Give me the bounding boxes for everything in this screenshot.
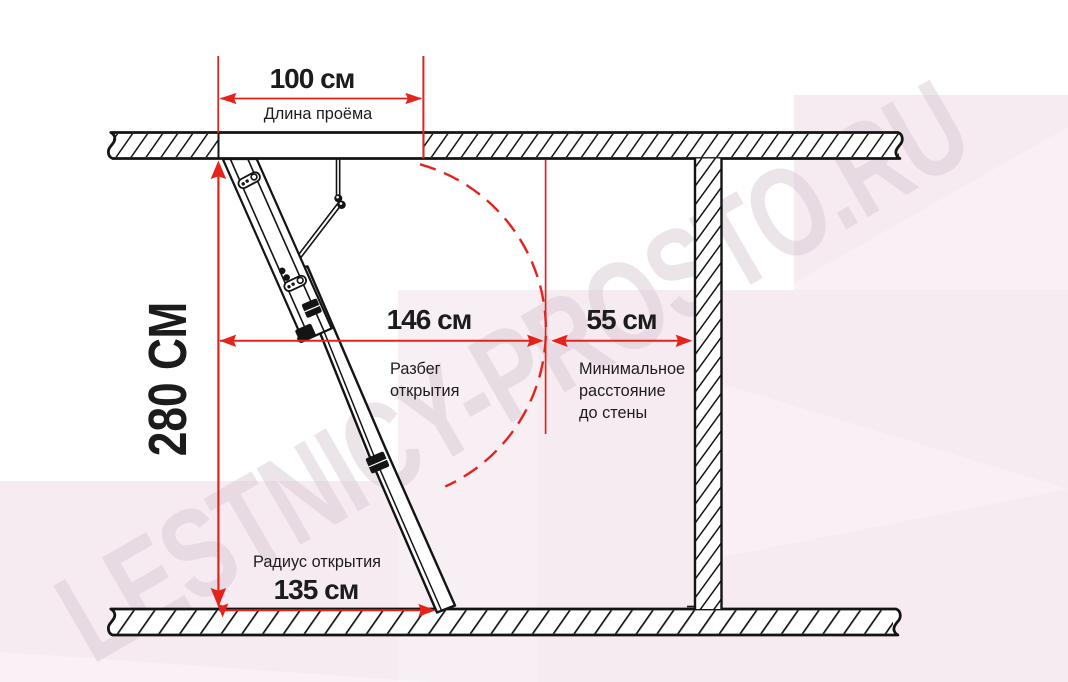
svg-text:Разбег: Разбег [390, 360, 441, 378]
svg-text:Длина проёма: Длина проёма [264, 105, 373, 123]
svg-text:до стены: до стены [579, 404, 647, 422]
svg-text:открытия: открытия [390, 382, 459, 400]
svg-text:55 см: 55 см [586, 304, 656, 335]
svg-text:280 СМ: 280 СМ [138, 302, 198, 456]
svg-text:146 см: 146 см [387, 304, 472, 335]
svg-text:135 см: 135 см [274, 574, 359, 605]
svg-text:100 см: 100 см [270, 63, 355, 94]
svg-text:Минимальное: Минимальное [579, 360, 685, 378]
svg-text:Радиус открытия: Радиус открытия [253, 553, 381, 571]
svg-text:расстояние: расстояние [579, 382, 666, 400]
